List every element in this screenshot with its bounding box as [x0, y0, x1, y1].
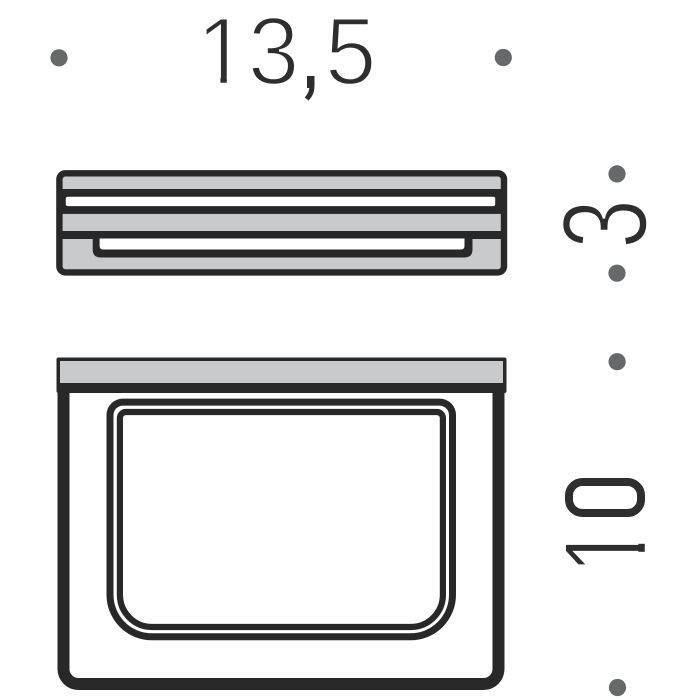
svg-text:13 5: 13 5: [197, 0, 377, 105]
svg-text:3: 3: [538, 199, 673, 248]
